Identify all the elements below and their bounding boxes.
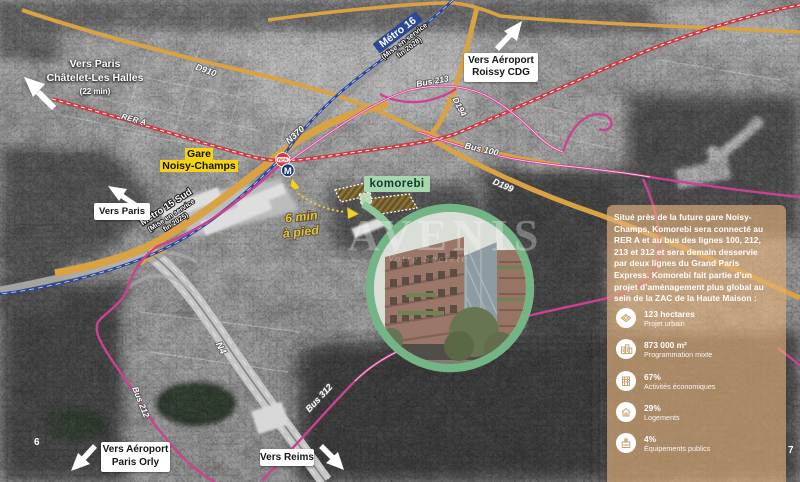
svg-text:7: 7 <box>788 445 794 456</box>
svg-text:6: 6 <box>34 437 40 448</box>
svg-text:RER: RER <box>278 157 288 162</box>
svg-text:M: M <box>284 166 292 177</box>
svg-text:AVENIS: AVENIS <box>348 211 545 260</box>
svg-text:Votre Societe: Votre Societe <box>388 254 469 265</box>
